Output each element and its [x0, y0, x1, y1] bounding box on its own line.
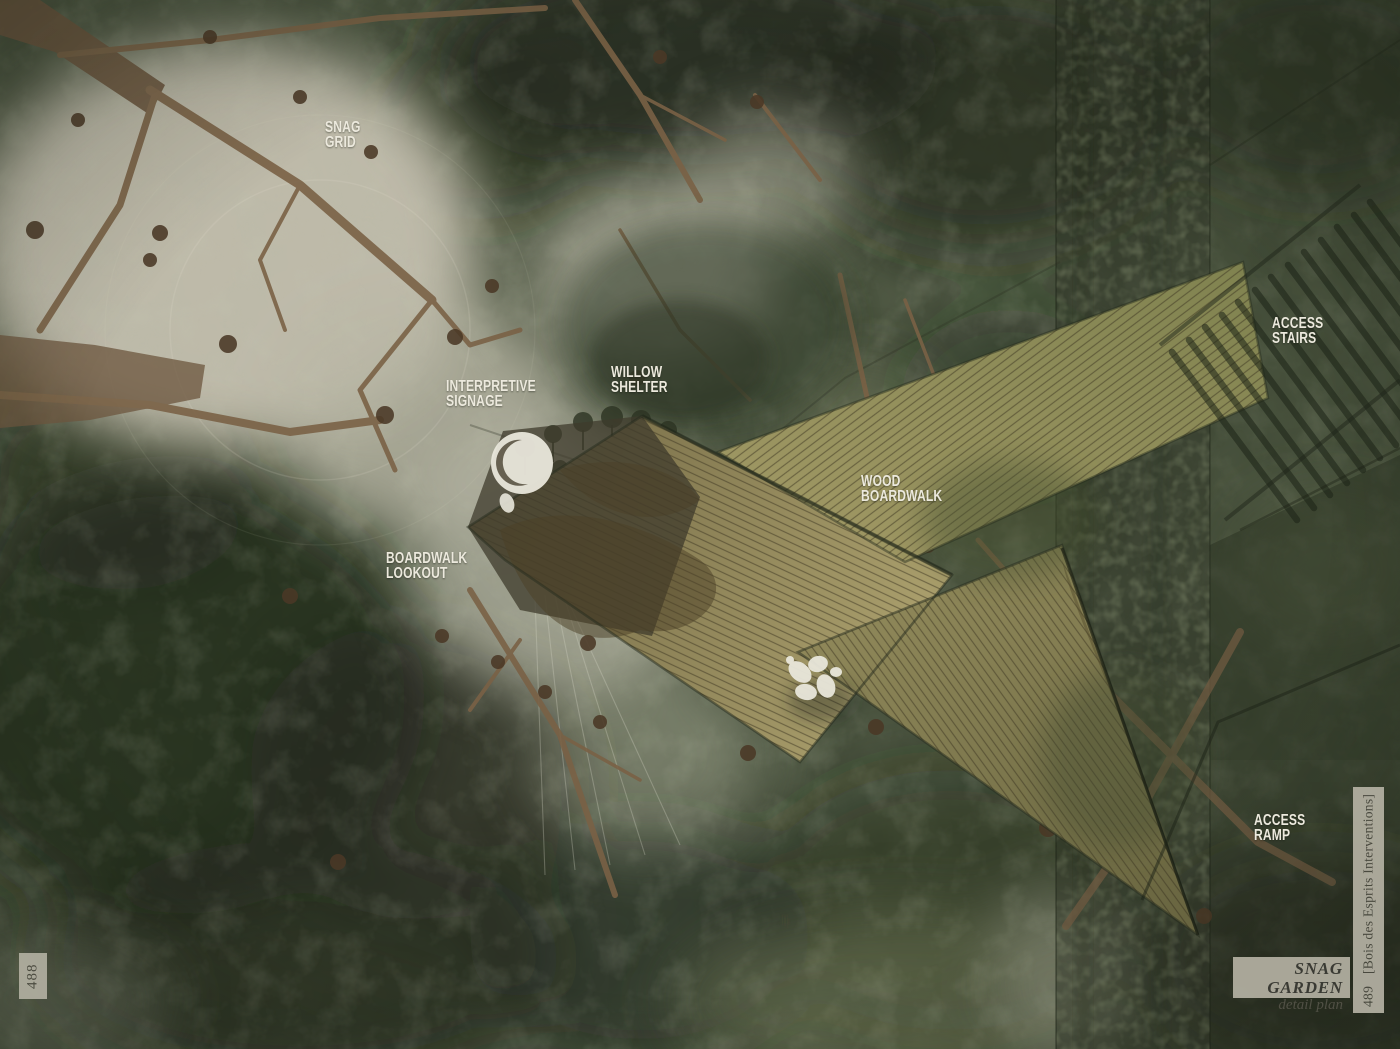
right-page-number: 489	[1361, 986, 1377, 1007]
left-page-number-tab: 488	[19, 953, 47, 999]
label-interpretive-signage: INTERPRETIVESIGNAGE	[446, 380, 536, 409]
plan-subtitle: detail plan	[1233, 997, 1343, 1013]
label-wood-boardwalk: WOODBOARDWALK	[861, 475, 942, 504]
plan-title-box: SNAG GARDEN detail plan	[1233, 957, 1350, 998]
right-page-number-margin-tab: 489[Bois des Esprits Interventions]	[1353, 787, 1384, 1013]
plan-title: SNAG GARDEN	[1233, 959, 1343, 997]
label-boardwalk-lookout: BOARDWALKLOOKOUT	[386, 552, 467, 581]
label-snag-grid: SNAGGRID	[325, 121, 361, 150]
plan-rendering	[0, 0, 1400, 1049]
label-willow-shelter: WILLOWSHELTER	[611, 366, 668, 395]
label-access-stairs: ACCESSSTAIRS	[1272, 317, 1323, 346]
snag-garden-detail-plan-page: SNAGGRID INTERPRETIVESIGNAGE WILLOWSHELT…	[0, 0, 1400, 1049]
vignette	[0, 0, 1400, 1049]
label-access-ramp: ACCESSRAMP	[1254, 814, 1305, 843]
chapter-margin-text: [Bois des Esprits Interventions]	[1361, 793, 1377, 973]
